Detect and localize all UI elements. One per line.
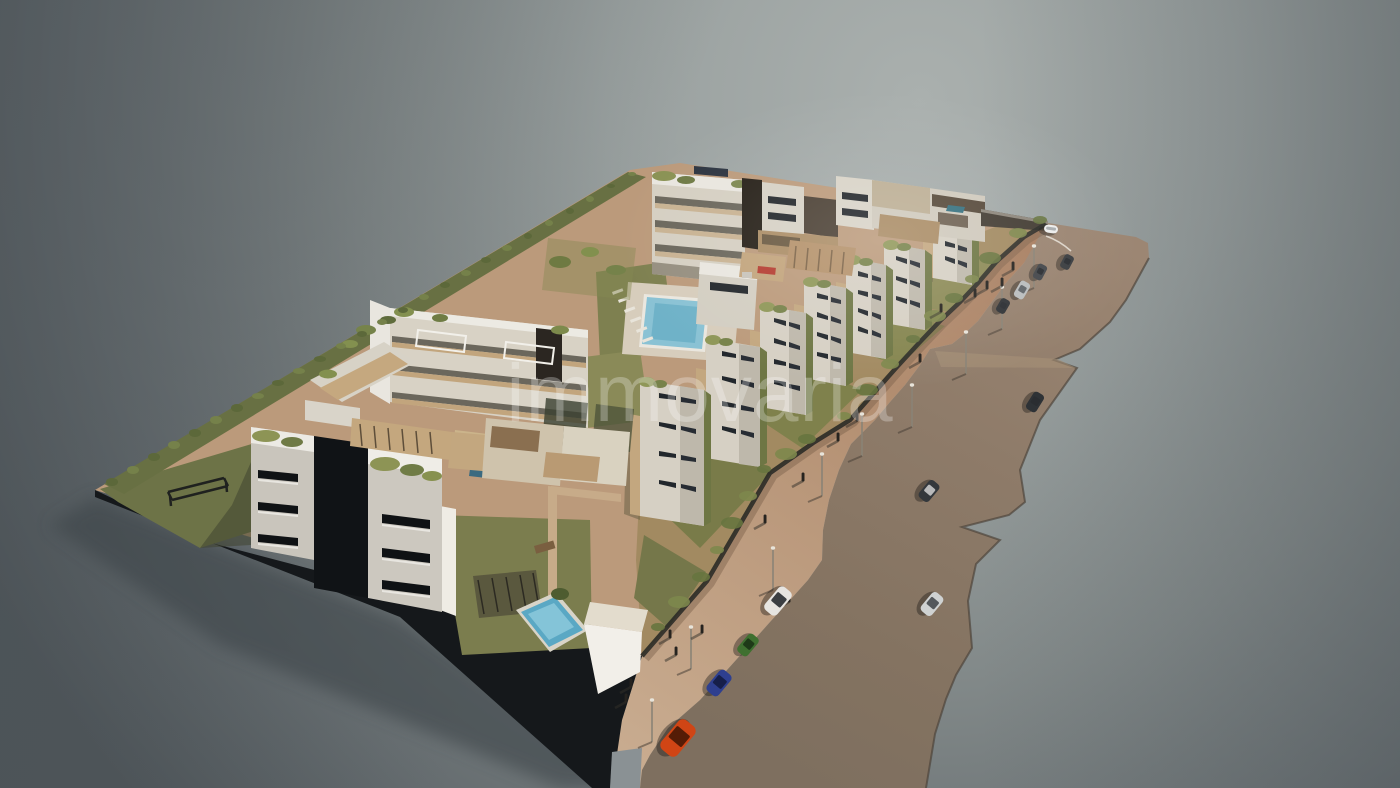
svg-text:immovaria: immovaria: [506, 348, 893, 439]
